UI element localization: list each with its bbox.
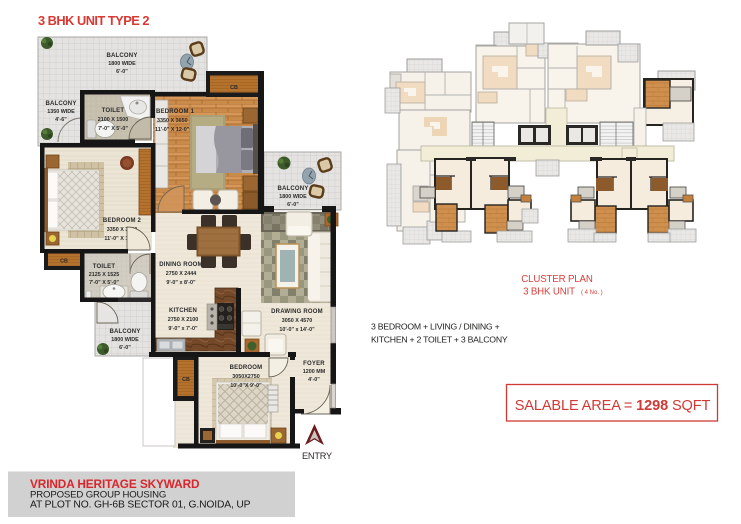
svg-text:3350 X 3650: 3350 X 3650: [157, 118, 188, 124]
svg-text:CB: CB: [60, 259, 68, 265]
svg-text:DRAWING ROOM: DRAWING ROOM: [271, 309, 323, 315]
svg-text:3050 X 4570: 3050 X 4570: [282, 318, 313, 324]
svg-text:TOILET: TOILET: [102, 108, 125, 114]
svg-text:CB: CB: [182, 377, 190, 383]
svg-text:9'-0" x 7'-0": 9'-0" x 7'-0": [168, 326, 198, 332]
svg-text:10'-0" x 14'-0": 10'-0" x 14'-0": [279, 327, 315, 333]
svg-text:( 4 No. ): ( 4 No. ): [581, 290, 603, 296]
svg-text:6'-0": 6'-0": [287, 202, 299, 208]
svg-text:1800 WIDE: 1800 WIDE: [111, 337, 139, 343]
svg-text:BALCONY: BALCONY: [45, 101, 76, 107]
svg-text:ENTRY: ENTRY: [302, 451, 332, 461]
svg-text:CB: CB: [230, 85, 238, 91]
svg-text:2125 X 1525: 2125 X 1525: [89, 272, 120, 278]
svg-text:SALABLE AREA = 1298 SQFT: SALABLE AREA = 1298 SQFT: [515, 398, 711, 414]
svg-text:KITCHEN: KITCHEN: [169, 308, 197, 314]
svg-text:BALCONY: BALCONY: [109, 329, 140, 335]
svg-text:9'-0" x 8'-0": 9'-0" x 8'-0": [166, 280, 196, 286]
svg-text:7'-0" X 5'-0": 7'-0" X 5'-0": [98, 126, 128, 132]
svg-text:2750 X 2100: 2750 X 2100: [168, 317, 199, 323]
svg-text:3 BHK UNIT: 3 BHK UNIT: [523, 287, 575, 298]
svg-text:AT PLOT NO. GH-6B SECTOR 01, G: AT PLOT NO. GH-6B SECTOR 01, G.NOIDA, UP: [30, 500, 251, 511]
svg-text:6'-0": 6'-0": [116, 69, 128, 75]
svg-text:6'-0": 6'-0": [119, 345, 131, 351]
svg-text:7'-0" X 5'-0": 7'-0" X 5'-0": [89, 280, 119, 286]
svg-text:BALCONY: BALCONY: [277, 186, 308, 192]
svg-text:BEDROOM: BEDROOM: [230, 365, 263, 371]
svg-text:BEDROOM 2: BEDROOM 2: [103, 218, 142, 224]
svg-text:4'-6": 4'-6": [55, 117, 67, 123]
svg-text:2750 X 2444: 2750 X 2444: [166, 271, 197, 277]
svg-text:FOYER: FOYER: [303, 361, 325, 367]
svg-text:2100 X 1500: 2100 X 1500: [98, 117, 129, 123]
svg-text:DINING ROOM: DINING ROOM: [159, 262, 203, 268]
svg-text:BALCONY: BALCONY: [106, 53, 137, 59]
svg-text:KITCHEN + 2 TOILET + 3 BALCONY: KITCHEN + 2 TOILET + 3 BALCONY: [371, 335, 508, 345]
svg-text:3 BHK UNIT TYPE 2: 3 BHK UNIT TYPE 2: [38, 13, 149, 28]
svg-text:3050X2750: 3050X2750: [232, 374, 260, 380]
svg-text:4'-0": 4'-0": [308, 377, 320, 383]
svg-text:BEDROOM 1: BEDROOM 1: [156, 109, 195, 115]
svg-text:10'-0"X 9'-0": 10'-0"X 9'-0": [230, 383, 262, 389]
svg-text:1350 WIDE: 1350 WIDE: [47, 109, 75, 115]
svg-text:3 BEDROOM + LIVING / DINING +: 3 BEDROOM + LIVING / DINING +: [371, 322, 500, 332]
svg-text:CLUSTER PLAN: CLUSTER PLAN: [521, 274, 593, 285]
svg-text:1200 MM: 1200 MM: [303, 369, 326, 375]
svg-text:1800 WIDE: 1800 WIDE: [279, 194, 307, 200]
svg-text:TOILET: TOILET: [93, 264, 116, 270]
svg-text:1800 WIDE: 1800 WIDE: [108, 61, 136, 67]
svg-text:11'-0" X 12-0": 11'-0" X 12-0": [155, 127, 190, 133]
